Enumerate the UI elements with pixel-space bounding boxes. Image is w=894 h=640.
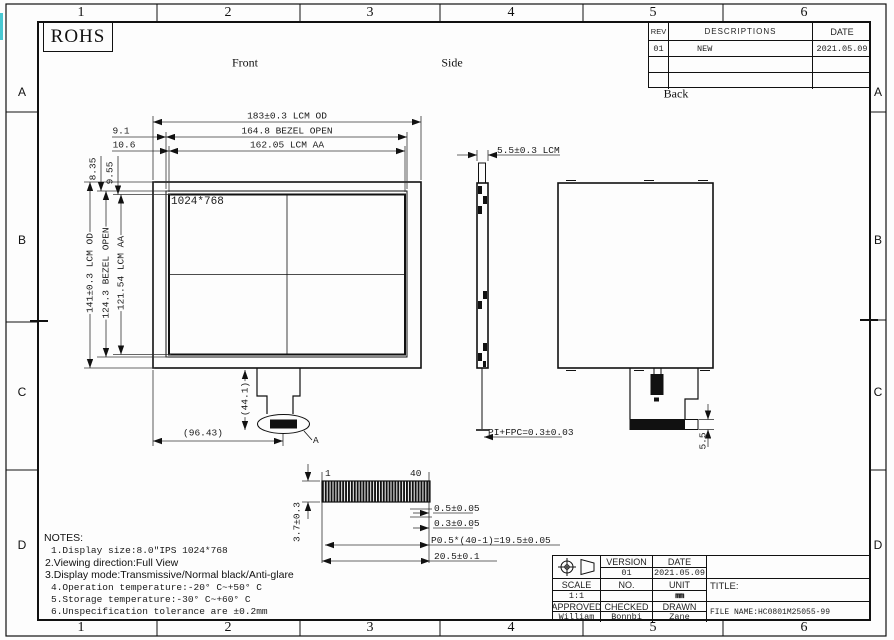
zone-col-1-bottom: 1 bbox=[78, 620, 85, 636]
pin-1-label: 1 bbox=[325, 468, 331, 479]
notes-title: NOTES: bbox=[44, 532, 83, 544]
approved-value: William bbox=[553, 612, 601, 622]
fpc-detail-outline bbox=[302, 464, 560, 563]
dim-fpc-thickness-1: 0.5±0.05 bbox=[434, 503, 480, 514]
dim-bezel-open-height: 124.3 BEZEL OPEN bbox=[101, 226, 112, 319]
zone-col-3-bottom: 3 bbox=[367, 620, 374, 636]
checked-header: CHECKED bbox=[601, 602, 653, 612]
zone-row-a-left: A bbox=[18, 85, 26, 99]
note-item-1: 1.Display size:8.0″IPS 1024*768 bbox=[51, 545, 228, 556]
dim-bezel-offset-x: 9.1 bbox=[112, 126, 129, 137]
rev-value: 01 bbox=[649, 41, 669, 57]
note-item-4: 4.Operation temperature:-20° C~+50° C bbox=[51, 582, 262, 593]
rohs-stamp: ROHS bbox=[43, 21, 113, 52]
projection-symbol-icon bbox=[553, 556, 599, 578]
back-view-outline bbox=[558, 181, 713, 430]
scale-header: SCALE bbox=[553, 579, 601, 591]
zone-col-4-top: 4 bbox=[508, 5, 515, 21]
projection-symbol-cell bbox=[553, 556, 601, 579]
scan-artifact bbox=[0, 13, 3, 40]
checked-value: Bonnbi bbox=[601, 612, 653, 622]
rev-date: 2021.05.09 bbox=[813, 41, 871, 57]
zone-row-c-right: C bbox=[874, 385, 883, 399]
note-item-3: 3.Display mode:Transmissive/Normal black… bbox=[45, 569, 294, 581]
front-view-label: Front bbox=[232, 56, 258, 71]
zone-col-4-bottom: 4 bbox=[508, 620, 515, 636]
unit-header: UNIT bbox=[653, 579, 707, 591]
unit-value: mm bbox=[653, 591, 707, 602]
dim-lcm-od-height: 141±0.3 LCM OD bbox=[85, 232, 96, 314]
title-block: VERSION DATE 01 2021.05.09 SCALE NO. UNI… bbox=[552, 555, 870, 621]
file-name: FILE NAME:HC0801M25055-99 bbox=[707, 602, 871, 622]
rev-empty-row bbox=[669, 57, 813, 73]
unit-value-text: mm bbox=[675, 592, 684, 601]
dim-bezel-offset-y: 8.35 bbox=[88, 158, 99, 181]
date-header: DATE bbox=[653, 556, 707, 568]
dim-back-tail-height: 5.5 bbox=[698, 432, 709, 449]
side-view-outline bbox=[476, 163, 489, 430]
desc-col-header: DESCRIPTIONS bbox=[669, 23, 813, 41]
no-header: NO. bbox=[601, 579, 653, 591]
title-block-empty-cell bbox=[707, 556, 871, 579]
note-item-5: 5.Storage temperature:-30° C~+60° C bbox=[51, 594, 251, 605]
zone-row-c-left: C bbox=[18, 385, 27, 399]
approved-header: APPROVED bbox=[553, 602, 601, 612]
title-header: TITLE: bbox=[707, 579, 871, 602]
dim-thickness: 5.5±0.3 LCM bbox=[497, 145, 560, 156]
drawn-header: DRAWN bbox=[653, 602, 707, 612]
note-item-6: 6.Unspecification tolerance are ±0.2mm bbox=[51, 606, 268, 617]
zone-row-d-left: D bbox=[18, 538, 27, 552]
zone-row-d-right: D bbox=[874, 538, 883, 552]
revision-table: REV DESCRIPTIONS DATE 01 NEW 2021.05.09 bbox=[648, 22, 870, 88]
side-view-dimensions bbox=[457, 150, 562, 437]
dim-tail-length: (44.1) bbox=[240, 381, 251, 417]
zone-row-a-right: A bbox=[874, 85, 882, 99]
dim-lcm-aa-width: 162.05 LCM AA bbox=[250, 140, 324, 151]
front-view-dimensions bbox=[84, 116, 421, 446]
dim-tail-position: (96.43) bbox=[183, 428, 223, 439]
zone-col-6-top: 6 bbox=[801, 5, 808, 21]
rev-empty-row bbox=[669, 73, 813, 89]
rev-empty-row bbox=[813, 73, 871, 89]
resolution-label: 1024*768 bbox=[171, 196, 224, 208]
rev-empty-row bbox=[649, 73, 669, 89]
front-view-outline bbox=[153, 182, 421, 440]
rohs-label: ROHS bbox=[51, 26, 106, 48]
scale-value: 1:1 bbox=[553, 591, 601, 602]
rev-empty-row bbox=[813, 57, 871, 73]
no-value bbox=[601, 591, 653, 602]
zone-col-1-top: 1 bbox=[78, 5, 85, 21]
version-header: VERSION bbox=[601, 556, 653, 568]
rev-description: NEW bbox=[669, 41, 813, 57]
zone-row-b-right: B bbox=[874, 233, 882, 247]
pin-40-label: 40 bbox=[410, 468, 421, 479]
date-value: 2021.05.09 bbox=[653, 568, 707, 579]
dim-fpc-pitch: P0.5*(40-1)=19.5±0.05 bbox=[431, 535, 551, 546]
zone-col-3-top: 3 bbox=[367, 5, 374, 21]
drawing-sheet: 1 2 3 4 5 6 1 2 3 4 5 6 A B C D A B C D … bbox=[0, 0, 894, 640]
zone-col-2-top: 2 bbox=[225, 5, 232, 21]
dim-aa-offset-x: 10.6 bbox=[113, 140, 136, 151]
zone-row-b-left: B bbox=[18, 233, 26, 247]
zone-col-6-bottom: 6 bbox=[801, 620, 808, 636]
dim-fpc-width: 20.5±0.1 bbox=[434, 551, 480, 562]
dim-lcm-aa-height: 121.54 LCM AA bbox=[116, 235, 127, 311]
dim-aa-offset-y: 9.55 bbox=[105, 162, 116, 185]
zone-col-5-bottom: 5 bbox=[650, 620, 657, 636]
dim-fpc-height: 3.7±0.3 bbox=[292, 502, 303, 542]
dim-bezel-open-width: 164.8 BEZEL OPEN bbox=[241, 126, 332, 137]
zone-col-2-bottom: 2 bbox=[225, 620, 232, 636]
dim-fpc-thickness-2: 0.3±0.05 bbox=[434, 518, 480, 529]
zone-col-5-top: 5 bbox=[650, 5, 657, 21]
date-col-header: DATE bbox=[813, 23, 871, 41]
dim-pi-fpc: PI+FPC=0.3±0.03 bbox=[488, 427, 574, 438]
side-view-label: Side bbox=[441, 56, 462, 71]
drawn-value: Zane bbox=[653, 612, 707, 622]
version-value: 01 bbox=[601, 568, 653, 579]
note-item-2: 2.Viewing direction:Full View bbox=[45, 557, 178, 569]
dim-lcm-od-width: 183±0.3 LCM OD bbox=[247, 111, 327, 122]
rev-empty-row bbox=[649, 57, 669, 73]
rev-col-header: REV bbox=[649, 23, 669, 41]
detail-callout-label: A bbox=[313, 435, 319, 446]
